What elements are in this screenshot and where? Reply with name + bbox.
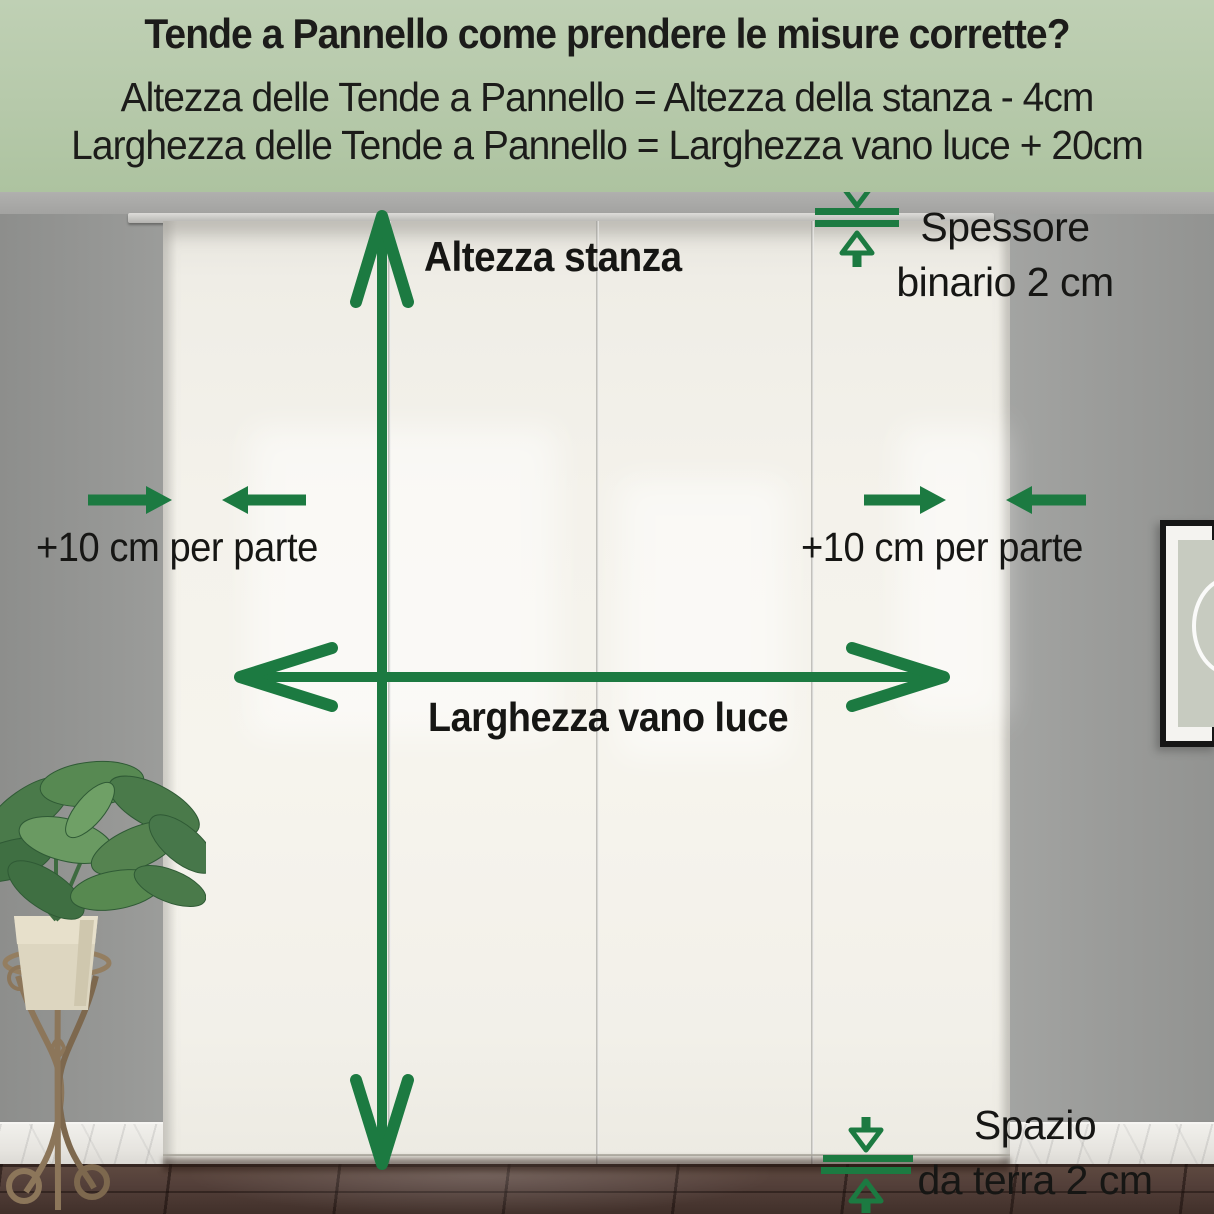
panel-seam: [596, 221, 599, 1164]
height-formula-text: Altezza delle Tende a Pannello = Altezza…: [30, 74, 1183, 121]
width-formula-text: Larghezza delle Tende a Pannello = Largh…: [30, 122, 1183, 169]
right-side-allowance-label: +10 cm per parte: [801, 524, 1083, 571]
plant-pot: [14, 916, 98, 1010]
page-title: Tende a Pannello come prendere le misure…: [42, 10, 1171, 58]
rail-thickness-label-line2: binario 2 cm: [875, 255, 1135, 310]
curtain-light-reflection: [249, 427, 557, 737]
panel-seam: [811, 221, 814, 1164]
floor-gap-label: Spazio da terra 2 cm: [905, 1098, 1165, 1208]
potted-plant-icon: [0, 748, 206, 1214]
left-side-allowance-label: +10 cm per parte: [36, 524, 318, 571]
header-band: Tende a Pannello come prendere le misure…: [0, 0, 1214, 192]
panel-curtain: [163, 221, 1010, 1164]
curtain-hem: [163, 1154, 1010, 1156]
curtain-light-reflection: [899, 427, 1003, 719]
rail-thickness-label: Spessore binario 2 cm: [875, 200, 1135, 310]
frame-artwork-circle: [1192, 576, 1214, 676]
plant-leaves: [0, 757, 206, 931]
curtain-floor-shadow: [163, 1158, 1010, 1171]
rail-thickness-label-line1: Spessore: [875, 200, 1135, 255]
room-height-label: Altezza stanza: [424, 233, 682, 281]
opening-width-label: Larghezza vano luce: [428, 694, 788, 741]
panel-seam: [388, 221, 391, 1164]
frame-artwork: [1178, 540, 1214, 727]
picture-frame: [1160, 520, 1214, 747]
infographic-panel-curtain-measures: Tende a Pannello come prendere le misure…: [0, 0, 1214, 1214]
floor-gap-label-line2: da terra 2 cm: [905, 1153, 1165, 1208]
floor-gap-label-line1: Spazio: [905, 1098, 1165, 1153]
